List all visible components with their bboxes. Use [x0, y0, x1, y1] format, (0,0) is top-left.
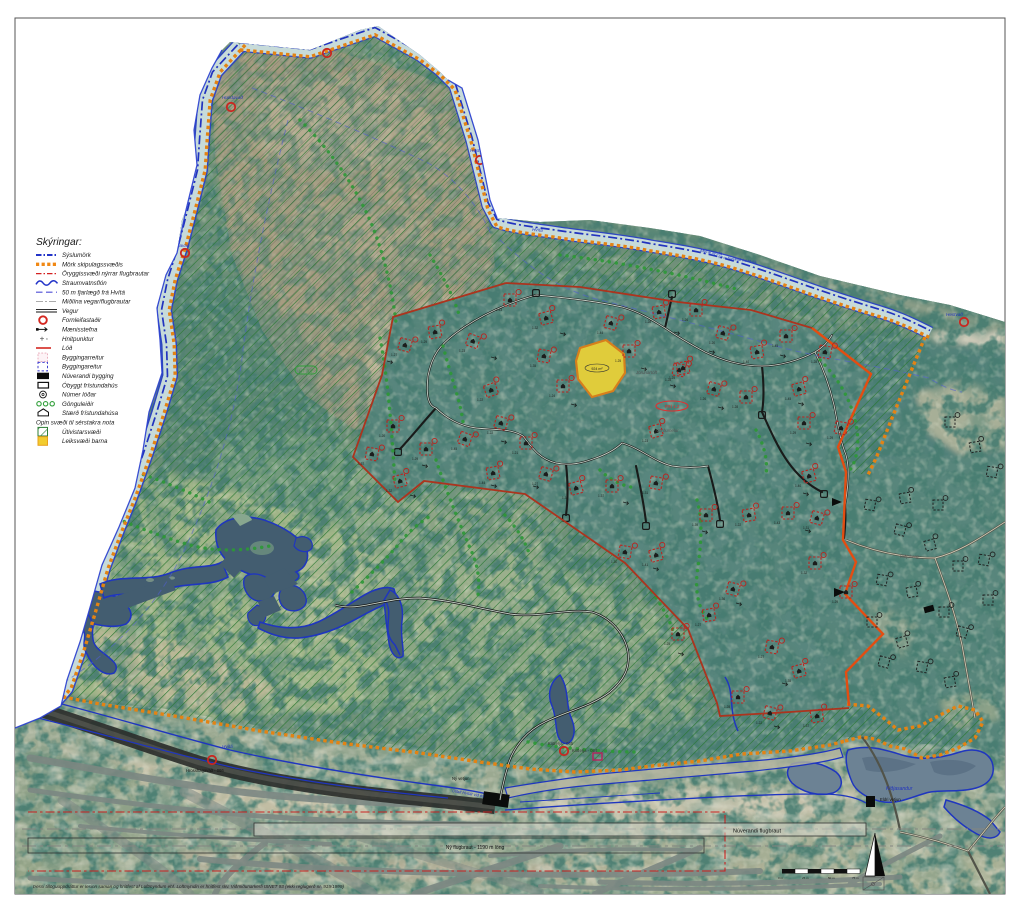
svg-text:Kotferja - 065: Kotferja - 065	[548, 741, 574, 746]
svg-text:Vegur: Vegur	[62, 308, 79, 315]
svg-text:Eldri vetjun: Eldri vetjun	[880, 797, 901, 802]
svg-text:Byggingareitur: Byggingareitur	[62, 364, 103, 371]
svg-text:Opin svæði til sérstakra nota: Opin svæði til sérstakra nota	[36, 420, 115, 427]
svg-text:25 m: 25 m	[802, 876, 809, 880]
svg-text:Miðlína vegar/flugbrautar: Miðlína vegar/flugbrautar	[62, 299, 131, 306]
svg-text:Sýslumörk: Sýslumörk	[62, 252, 92, 259]
svg-text:Óbyggt frístundahús: Óbyggt frístundahús	[62, 382, 118, 389]
svg-text:Lóð: Lóð	[62, 345, 73, 352]
svg-text:50 m fjarlægð frá Hvítá: 50 m fjarlægð frá Hvítá	[62, 289, 125, 296]
svg-text:0 m: 0 m	[778, 876, 784, 880]
svg-text:Norðurspónot: Norðurspónot	[240, 39, 269, 44]
svg-text:Straumvatnsflón: Straumvatnsflón	[62, 280, 107, 287]
svg-text:Hnitpunktur: Hnitpunktur	[62, 336, 95, 343]
svg-text:Stærð frístundahúsa: Stærð frístundahúsa	[62, 410, 119, 417]
svg-text:Gönguleiðir: Gönguleiðir	[62, 401, 95, 408]
svg-text:Öryggissvæði nýrrar flugbrauta: Öryggissvæði nýrrar flugbrautar	[62, 271, 150, 278]
svg-text:Vörðumelur: Vörðumelur	[656, 428, 679, 433]
svg-text:924 m²: 924 m²	[591, 367, 603, 371]
svg-text:Fljótsós: Fljótsós	[322, 35, 339, 40]
svg-text:Útivistarsvæði: Útivistarsvæði	[62, 429, 101, 436]
svg-text:Þessi tillöguuppdráttur er les: Þessi tillöguuppdráttur er lesinn saman …	[33, 884, 344, 889]
svg-text:FRÍ 1.2: FRÍ 1.2	[665, 403, 680, 409]
svg-text:75 m: 75 m	[852, 876, 859, 880]
svg-text:Fornleifastaðir: Fornleifastaðir	[62, 317, 102, 324]
svg-text:Núverandi bygging: Núverandi bygging	[62, 373, 114, 380]
svg-text:Skýringar:: Skýringar:	[36, 237, 82, 248]
svg-text:Kotferja - 064: Kotferja - 064	[572, 748, 598, 753]
svg-text:Hrosshagavað - 066: Hrosshagavað - 066	[186, 768, 224, 773]
svg-text:x: x	[46, 337, 48, 341]
svg-text:Mörk skipulagssvæðis: Mörk skipulagssvæðis	[62, 261, 123, 268]
svg-text:50 m: 50 m	[828, 876, 835, 880]
svg-text:Mænisstefna: Mænisstefna	[62, 327, 98, 334]
svg-text:Kiðjaberg: Kiðjaberg	[900, 554, 919, 559]
svg-text:Byggingarreitur: Byggingarreitur	[62, 354, 105, 361]
svg-text:Leiksvæði barna: Leiksvæði barna	[62, 438, 108, 445]
svg-text:Númer lóðar: Númer lóðar	[62, 392, 97, 399]
svg-text:Ný vetjun: Ný vetjun	[452, 776, 470, 781]
svg-text:Jórunartóft: Jórunartóft	[635, 370, 658, 375]
svg-text:ÚT 3.2: ÚT 3.2	[299, 367, 313, 373]
